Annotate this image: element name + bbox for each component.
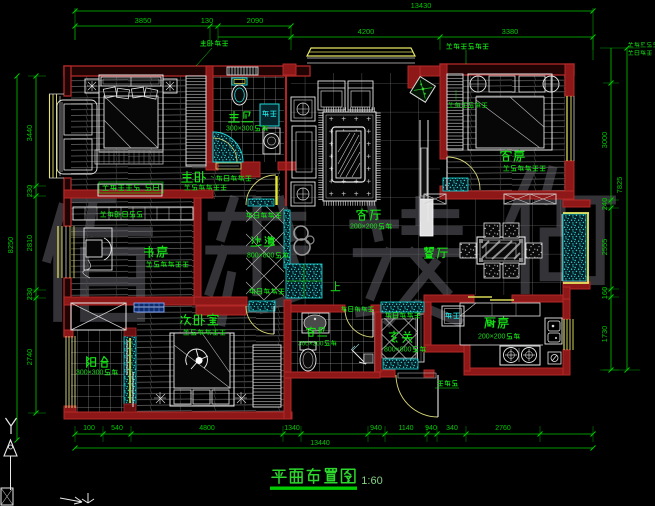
svg-text:2810: 2810 (25, 235, 34, 252)
svg-text:13440: 13440 (310, 440, 330, 447)
svg-text:200×200: 200×200 (350, 224, 378, 231)
svg-text:2740: 2740 (25, 349, 34, 366)
svg-text:3380: 3380 (502, 27, 519, 36)
svg-text:3000: 3000 (600, 132, 609, 149)
svg-text:200×200: 200×200 (478, 334, 506, 341)
svg-text:300×300: 300×300 (226, 126, 254, 133)
svg-text:1:60: 1:60 (361, 475, 382, 487)
svg-text:940: 940 (425, 425, 437, 432)
svg-text:1340: 1340 (284, 425, 300, 432)
svg-text:800×800: 800×800 (247, 253, 275, 260)
svg-text:800×800: 800×800 (384, 347, 412, 354)
svg-text:240: 240 (600, 198, 609, 211)
svg-text:300×300: 300×300 (298, 340, 324, 347)
svg-text:2555: 2555 (600, 239, 609, 256)
svg-text:8250: 8250 (6, 237, 15, 254)
svg-text:2090: 2090 (247, 16, 264, 25)
svg-text:100: 100 (83, 425, 95, 432)
svg-text:3850: 3850 (135, 16, 152, 25)
svg-text:4800: 4800 (199, 425, 215, 432)
svg-text:300×300: 300×300 (76, 370, 104, 377)
svg-text:1140: 1140 (398, 425, 413, 432)
svg-text:7825: 7825 (615, 177, 624, 194)
svg-text:230: 230 (25, 185, 34, 198)
svg-text:13430: 13430 (411, 1, 432, 10)
svg-text:3440: 3440 (25, 125, 34, 142)
svg-text:340: 340 (446, 425, 458, 432)
svg-text:230: 230 (25, 288, 34, 301)
svg-text:1730: 1730 (600, 326, 609, 343)
svg-text:940: 940 (370, 425, 382, 432)
svg-text:4200: 4200 (358, 27, 375, 36)
svg-text:540: 540 (111, 425, 123, 432)
svg-text:160: 160 (600, 287, 609, 300)
svg-text:130: 130 (201, 16, 214, 25)
svg-text:2760: 2760 (495, 425, 511, 432)
